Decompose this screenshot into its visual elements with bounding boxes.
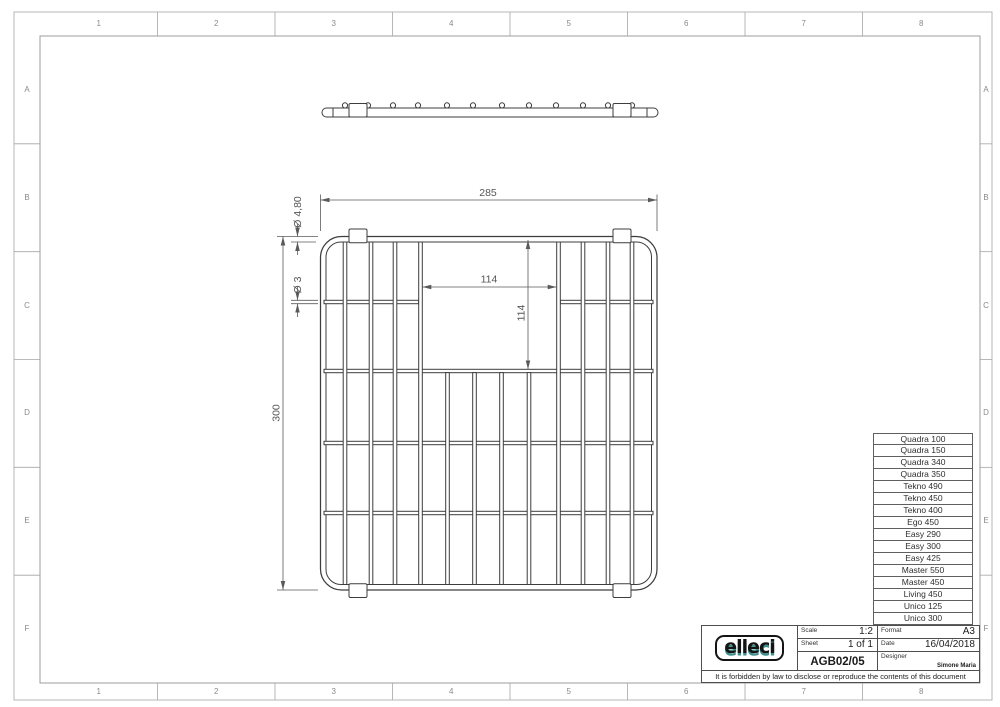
zone-col-top-4: 4 [449,20,453,28]
zone-col-bottom-2: 2 [214,688,218,696]
date-cell: Date 16/04/2018 [878,639,979,652]
zone-col-top-3: 3 [332,20,336,28]
zone-row-left-B: B [24,194,29,202]
model-row: Tekno 490 [873,481,973,493]
model-row: Easy 290 [873,529,973,541]
zone-row-left-A: A [24,86,29,94]
zone-row-right-B: B [983,194,988,202]
zone-col-bottom-8: 8 [919,688,923,696]
zone-col-bottom-7: 7 [802,688,806,696]
side-clip-right [613,104,631,118]
date-value: 16/04/2018 [925,639,975,650]
zone-row-left-E: E [24,517,29,525]
model-row: Easy 300 [873,541,973,553]
front-clip-top-left [349,229,367,243]
zone-col-top-1: 1 [97,20,101,28]
front-clip-bottom-left [349,584,367,598]
model-row: Tekno 400 [873,505,973,517]
zone-col-bottom-5: 5 [567,688,571,696]
zone-row-right-A: A [983,86,988,94]
dim-wire-inner: Ø 3 [292,276,304,293]
zone-col-top-8: 8 [919,20,923,28]
model-row: Unico 300 [873,613,973,625]
dim-overall-width: 285 [479,187,497,199]
dim-opening-height: 114 [516,304,528,321]
model-row: Living 450 [873,589,973,601]
model-row: Quadra 340 [873,457,973,469]
elleci-logo: elleci [715,635,784,662]
format-value: A3 [963,626,975,637]
zone-col-bottom-3: 3 [332,688,336,696]
zone-row-left-C: C [24,302,30,310]
title-block: elleci Scale 1:2 Format A3 Sheet 1 of 1 … [701,625,980,683]
scale-value: 1:2 [859,626,873,637]
zone-col-bottom-1: 1 [97,688,101,696]
doc-number-cell: AGB02/05 [798,652,878,670]
front-clip-bottom-right [613,584,631,598]
doc-number: AGB02/05 [798,656,877,668]
legal-notice: It is forbidden by law to disclose or re… [702,670,979,683]
zone-col-bottom-6: 6 [684,688,688,696]
zone-row-right-F: F [984,625,989,633]
side-view [322,103,658,117]
scale-cell: Scale 1:2 [798,626,878,639]
dim-overall-height: 300 [271,404,283,422]
dim-wire-outer: Ø 4,80 [292,196,304,228]
zone-row-left-F: F [25,625,30,633]
zone-col-top-5: 5 [567,20,571,28]
zone-col-top-2: 2 [214,20,218,28]
sheet-label: Sheet [801,640,818,647]
dim-opening-width: 114 [481,274,498,286]
zone-col-top-7: 7 [802,20,806,28]
zone-row-left-D: D [24,409,30,417]
format-label: Format [881,627,902,634]
sheet-cell: Sheet 1 of 1 [798,639,878,652]
designer-cell: Designer Simone Maria [878,652,979,670]
logo-cell: elleci [702,626,798,670]
drawing-sheet: 285 300 Ø 4,80 Ø 3 114 114 11223 [0,0,1000,707]
zone-row-right-E: E [983,517,988,525]
logo-text: elleci [724,637,775,658]
designer-name: Simone Maria [937,663,976,669]
model-table: Quadra 100Quadra 150Quadra 340Quadra 350… [873,433,973,625]
model-row: Unico 125 [873,601,973,613]
model-row: Easy 425 [873,553,973,565]
date-label: Date [881,640,895,647]
format-cell: Format A3 [878,626,979,639]
model-row: Quadra 150 [873,445,973,457]
model-row: Quadra 100 [873,433,973,445]
sheet-value: 1 of 1 [848,639,873,650]
zone-col-bottom-4: 4 [449,688,453,696]
drawing-canvas: 285 300 Ø 4,80 Ø 3 114 114 [0,0,1000,707]
side-clip-left [349,104,367,118]
zone-row-right-C: C [983,302,989,310]
zone-row-right-D: D [983,409,989,417]
scale-label: Scale [801,627,817,634]
designer-label: Designer [881,653,907,660]
model-row: Master 550 [873,565,973,577]
zone-col-top-6: 6 [684,20,688,28]
model-row: Master 450 [873,577,973,589]
model-row: Tekno 450 [873,493,973,505]
front-clip-top-right [613,229,631,243]
model-row: Ego 450 [873,517,973,529]
model-row: Quadra 350 [873,469,973,481]
